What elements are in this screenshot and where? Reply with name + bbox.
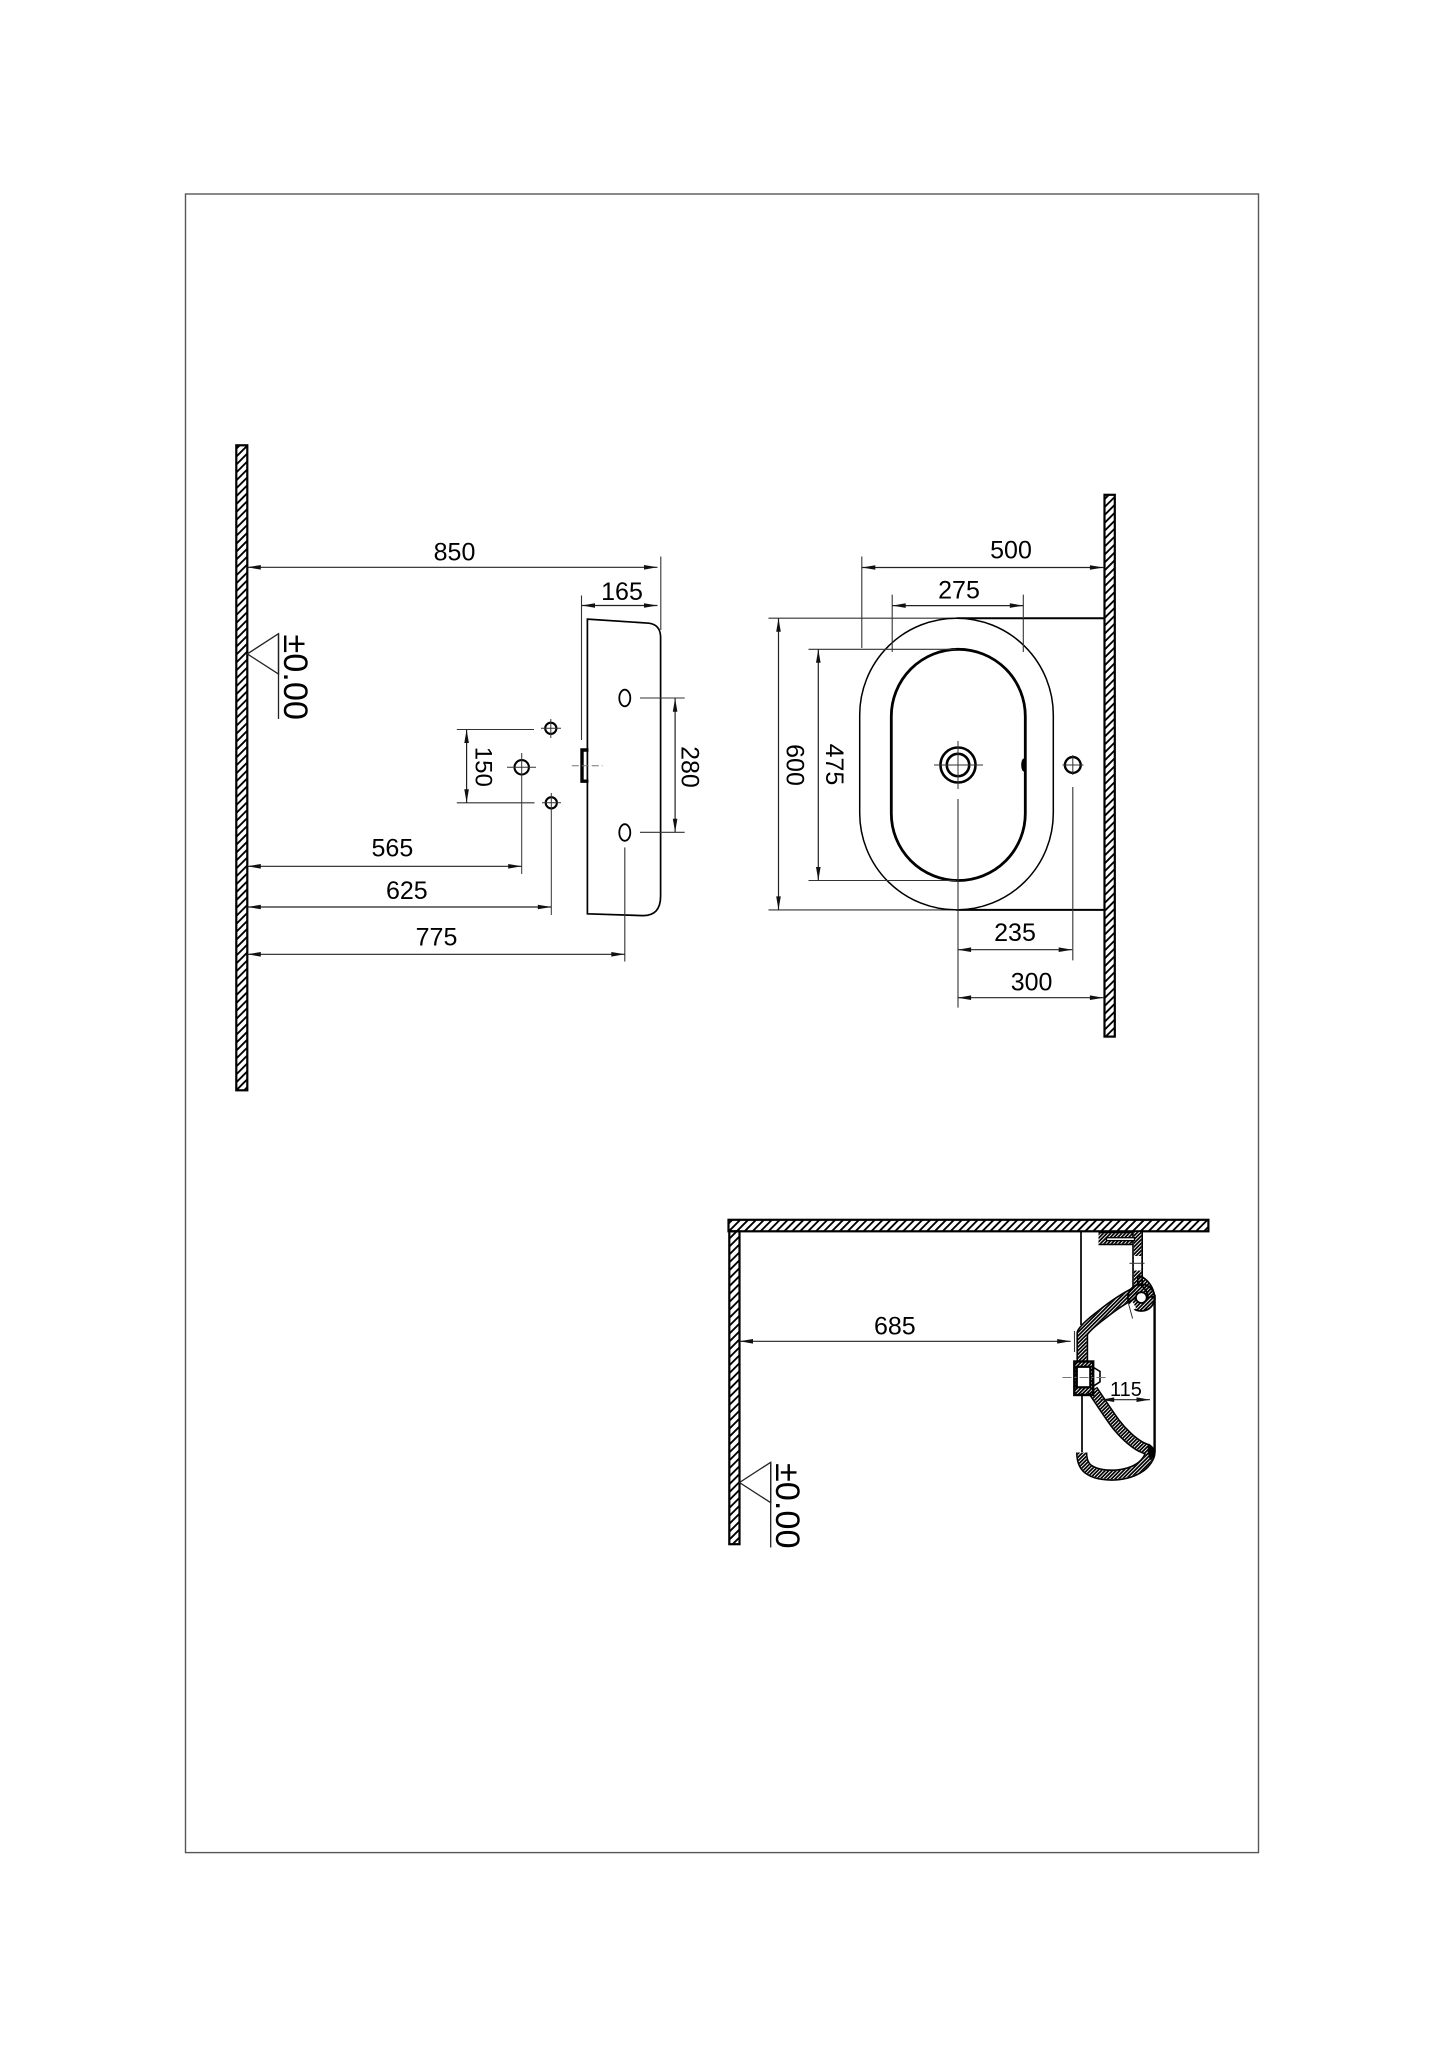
- svg-text:±0.00: ±0.00: [276, 634, 314, 720]
- svg-text:275: 275: [938, 577, 980, 605]
- svg-text:500: 500: [990, 537, 1032, 565]
- svg-text:150: 150: [469, 747, 496, 787]
- svg-text:850: 850: [434, 538, 476, 566]
- svg-text:165: 165: [601, 578, 643, 606]
- svg-text:475: 475: [820, 744, 848, 786]
- svg-text:115: 115: [1110, 1379, 1142, 1401]
- svg-text:280: 280: [676, 746, 704, 788]
- svg-text:625: 625: [386, 877, 428, 905]
- svg-text:775: 775: [416, 924, 458, 952]
- svg-text:600: 600: [781, 744, 809, 786]
- svg-text:±0.00: ±0.00: [768, 1463, 806, 1549]
- svg-text:235: 235: [994, 919, 1036, 947]
- svg-text:300: 300: [1011, 968, 1053, 996]
- svg-text:685: 685: [874, 1313, 916, 1341]
- svg-text:565: 565: [372, 835, 414, 863]
